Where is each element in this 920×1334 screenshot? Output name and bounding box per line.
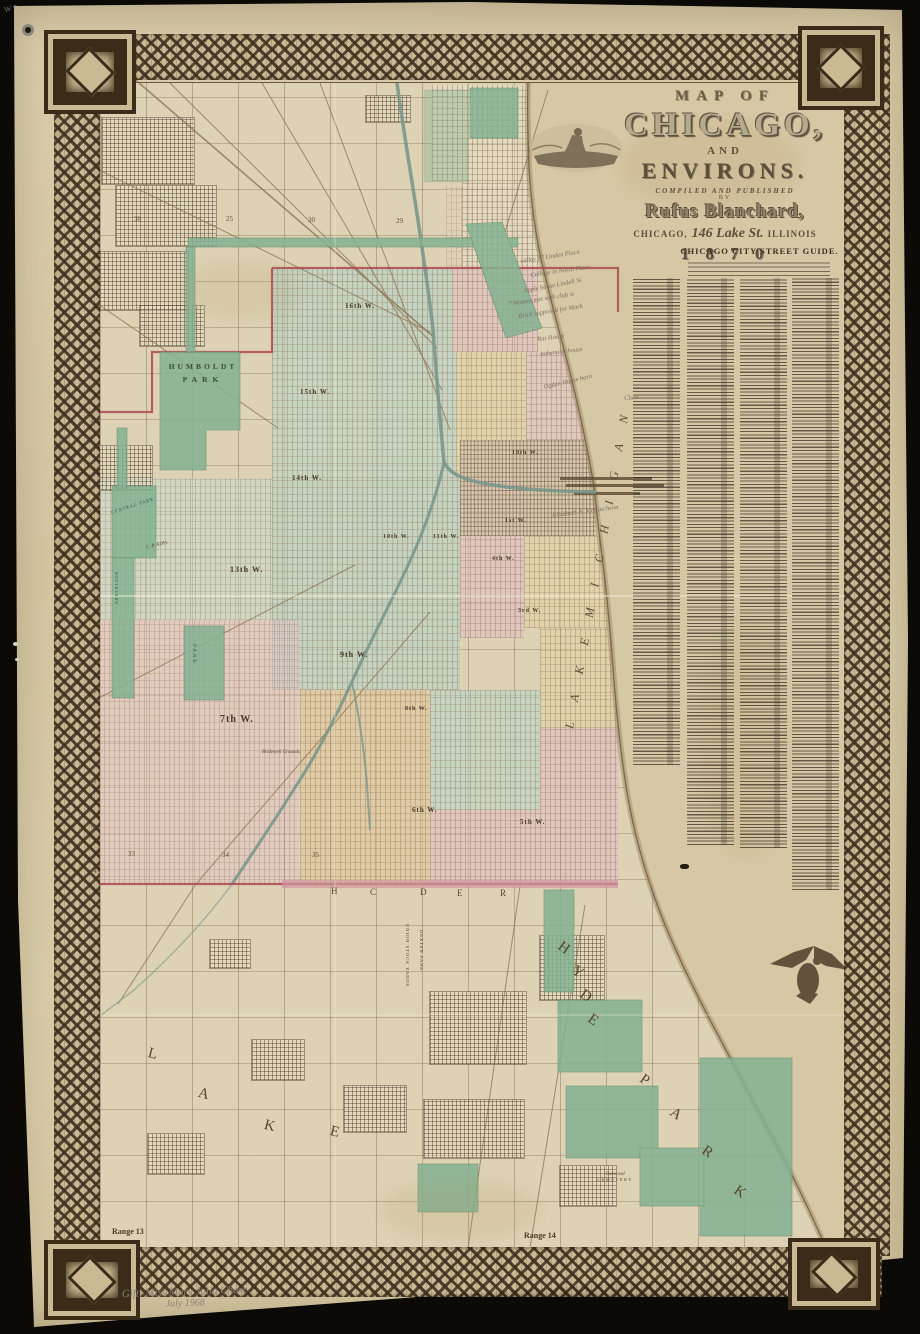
stain (380, 1180, 540, 1240)
ward-label: 4th W. (492, 556, 515, 562)
ward-patch (100, 478, 272, 620)
border-right (844, 34, 890, 1256)
street-guide-column (633, 278, 680, 765)
douglas-park-label: PARK (191, 644, 196, 665)
section-number: 35 (312, 851, 319, 859)
street-guide-column (740, 278, 787, 848)
plat-cluster (98, 446, 152, 490)
humboldt-park-label: HUMBOLDT PARK (164, 362, 242, 384)
plat-cluster (116, 186, 216, 246)
section-number: 36 (134, 215, 141, 223)
scanned-map-photo: MAP OF CHICAGO, AND ENVIRONS. COMPILED A… (0, 0, 920, 1334)
ward-label: 15th W. (300, 388, 330, 396)
ward-patch (300, 690, 430, 884)
border-corner-br (788, 1238, 880, 1310)
border-corner-tr (798, 26, 884, 110)
border-left (54, 34, 100, 1297)
plat-cluster (210, 940, 250, 968)
section-number: 34 (222, 851, 229, 859)
township-line-letter: E (457, 888, 463, 898)
township-line-letter: H (331, 886, 338, 896)
margin-number: 2 (90, 328, 93, 335)
section-number: 29 (396, 217, 403, 225)
margin-number: 12 (90, 778, 97, 785)
border-top (46, 34, 880, 80)
ward-label: 7th W. (220, 714, 254, 725)
margin-number: 9 (90, 643, 93, 650)
plat-cluster (140, 306, 204, 346)
margin-number: 7 (90, 553, 93, 560)
fold-crease (334, 83, 336, 1248)
plat-cluster (148, 1134, 204, 1174)
plat-cluster (366, 96, 410, 122)
ward-label: 10th W. (383, 534, 410, 540)
plat-cluster (430, 992, 526, 1064)
margin-number: 3 (90, 373, 93, 380)
margin-number: 11 (90, 733, 96, 740)
ward-patch (540, 728, 618, 884)
boulevard-label: BOULEVARD (114, 572, 119, 605)
title-and: AND (597, 145, 853, 157)
title-address: CHICAGO, 146 Lake St. ILLINOIS (597, 224, 853, 242)
ward-patch (272, 600, 460, 690)
title-compiled: COMPILED AND PUBLISHED (597, 187, 853, 195)
border-corner-tl (44, 30, 136, 114)
grommet (22, 24, 34, 36)
margin-number: 10 (90, 688, 97, 695)
ward-label: 8th W. (405, 706, 428, 712)
ward-label: 5th W. (520, 818, 545, 826)
ward-label: 6th W. (412, 806, 437, 814)
plat-cluster (96, 252, 188, 310)
plat-cluster (252, 1040, 304, 1080)
paper-speck (13, 642, 18, 646)
title-address-city: CHICAGO, (633, 229, 687, 239)
section-number: 25 (226, 215, 233, 223)
ward-patch (272, 268, 452, 352)
title-environs: ENVIRONS. (597, 158, 853, 184)
plat-cluster (102, 118, 194, 184)
plat-cluster (344, 1086, 406, 1132)
margin-number: 5 (90, 463, 93, 470)
ward-patch (272, 478, 460, 600)
fold-crease (100, 1014, 845, 1016)
section-number: 33 (128, 850, 135, 858)
margin-number: 4 (90, 418, 93, 425)
margin-number: 14 (90, 868, 97, 875)
margin-number: 6 (90, 508, 93, 515)
ward-label: 16th W. (345, 302, 375, 310)
ink-blot (680, 864, 689, 869)
title-block: MAP OF CHICAGO, AND ENVIRONS. COMPILED A… (597, 88, 853, 258)
range-13-label: Range 13 (112, 1227, 144, 1236)
margin-number: 1 (90, 283, 93, 290)
ward-patch (452, 268, 538, 352)
paper-speck (15, 658, 19, 661)
ward-label: 14th W. (292, 474, 322, 482)
township-line-letter: C (370, 887, 376, 897)
plat-cluster (424, 1100, 524, 1158)
street-guide-intro (688, 259, 830, 276)
stain (180, 260, 300, 320)
ward-label: 9th W. (340, 650, 368, 659)
ward-label: 13th W. (230, 565, 263, 574)
range-14-label: Range 14 (524, 1231, 556, 1240)
ward-label: 18th W. (512, 450, 539, 456)
township-line-letter: R (500, 888, 506, 898)
ward-label: 11th W. (433, 534, 459, 540)
title-address-state: ILLINOIS (768, 229, 817, 239)
plat-cluster (432, 85, 558, 181)
street-guide-column (687, 278, 734, 845)
dexter-park-label: DEXTER PARK (419, 930, 424, 971)
title-address-street: 146 Lake St. (692, 226, 764, 241)
title-publisher: Rufus Blanchard, (597, 201, 853, 223)
ward-label: 1st W. (505, 518, 527, 524)
street-guide-column (792, 278, 839, 890)
bridewell-label: Bridewell Grounds (262, 750, 300, 755)
margin-number: 8 (90, 598, 93, 605)
ward-patch (272, 352, 456, 478)
street-guide-header: CHICAGO CITY STREET GUIDE. (662, 246, 857, 256)
margin-number: 13 (90, 823, 97, 830)
oakwood-cemetery-label: Oakwood CEMETERY (580, 1172, 650, 1182)
ward-label: 3rd W. (518, 608, 541, 614)
township-line-letter: D (420, 887, 427, 897)
pencil-annotation: Clark (624, 394, 639, 402)
title-chicago: CHICAGO, (597, 107, 853, 144)
ward-patch (430, 690, 540, 810)
section-number: 30 (308, 216, 315, 224)
union-stock-yards-label: UNION STOCK YARDS (405, 924, 410, 987)
